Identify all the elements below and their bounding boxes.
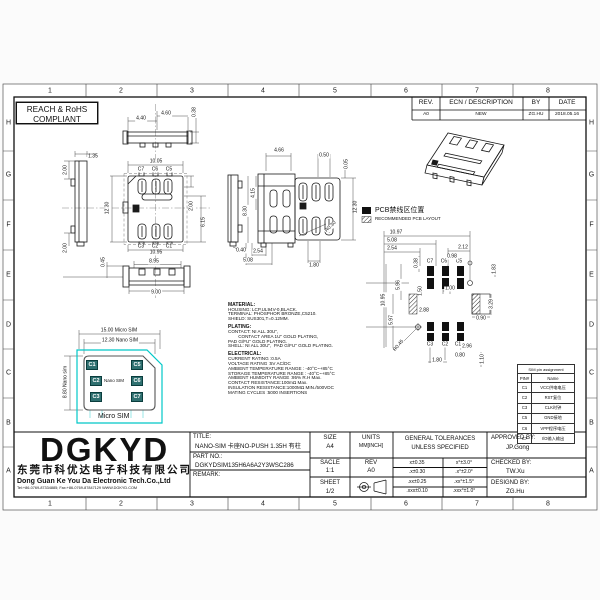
dimension-label: 12.30 Nano SIM	[101, 339, 139, 344]
dimension-label: 10.95	[149, 251, 164, 256]
dimension-label: C1	[165, 245, 173, 250]
tolerance-cell: .xxx±0.10	[406, 489, 427, 494]
dimension-label: 8.30	[244, 205, 249, 217]
grid-col-ref: 8	[546, 87, 550, 94]
tolerance-cell: .xx±0.25	[408, 480, 427, 485]
grid-row-ref: H	[6, 120, 11, 127]
dimension-label: 1.80	[431, 359, 443, 364]
grid-row-ref: A	[6, 468, 11, 475]
legend-keepout-label: PCB禁线区位置	[375, 207, 424, 214]
dimension-label: C6	[151, 168, 159, 173]
dimension-label: 0.38	[415, 257, 420, 269]
grid-col-ref: 5	[333, 500, 337, 507]
sheet-value: 1/2	[326, 489, 335, 495]
company-contact: Tel:+86-0769-87334885; Fax:+86-0769-8784…	[17, 487, 137, 491]
dimension-label: 2.54	[252, 250, 264, 255]
grid-row-ref: A	[589, 468, 594, 475]
grid-col-ref: 1	[48, 87, 52, 94]
dimension-label: 10.05	[149, 160, 164, 165]
grid-row-ref: F	[589, 222, 593, 229]
scale-label: SACLE	[320, 460, 340, 466]
tolerance-cell: .xx°±1.5°	[454, 480, 474, 485]
compliance-line2: COMPLIANT	[17, 115, 97, 125]
pin-table-row: C5GND接地	[518, 414, 574, 424]
remark-label: REMARK:	[193, 472, 220, 478]
grid-row-ref: D	[589, 322, 594, 329]
rev-value: A0	[423, 113, 429, 118]
grid-col-ref: 6	[404, 87, 408, 94]
dimension-label: 0.98	[446, 255, 458, 260]
grid-row-ref: E	[589, 272, 594, 279]
title-label: TITLE:	[193, 434, 211, 440]
grid-row-ref: C	[6, 370, 11, 377]
dimension-label: 2.96	[461, 345, 473, 350]
dimension-label: 1.10	[481, 353, 486, 365]
grid-col-ref: 1	[48, 500, 52, 507]
dimension-label: 5.97	[390, 314, 395, 326]
ecn-value: NEW	[475, 113, 486, 118]
dimension-label: 9.00	[150, 291, 162, 296]
sim-pad-c1: C1	[86, 360, 98, 370]
dimension-label: 2.12	[457, 246, 469, 251]
dimension-label: 2.00	[64, 164, 69, 176]
grid-col-ref: 6	[404, 500, 408, 507]
company-logo: DGKYD	[40, 433, 169, 466]
scale-value: 1:1	[326, 468, 335, 474]
grid-row-ref: E	[6, 272, 11, 279]
dimension-label: 3.29	[490, 298, 495, 310]
sim-pad-c3: C3	[90, 392, 102, 402]
designed-by-value: ZG.Hu	[506, 489, 524, 495]
dimension-label: 4.15	[252, 187, 257, 199]
pin-table-row: C6VPP程序电压	[518, 424, 574, 434]
units-label: UNITS	[362, 435, 380, 441]
tolerance-cell: .x±0.30	[409, 470, 425, 475]
date-value: 2018.05.16	[555, 113, 579, 118]
dimension-label: C6	[440, 260, 448, 265]
grid-col-ref: 8	[546, 500, 550, 507]
legend-recommended-label: RECOMMENDED PCB LAYOUT	[375, 217, 441, 222]
dimension-label: 12.30	[354, 200, 359, 215]
grid-col-ref: 4	[261, 500, 265, 507]
name-col-header: Name	[532, 374, 574, 382]
pin-table-row: C3CLK时钟	[518, 404, 574, 414]
dimension-label: 1.00	[444, 287, 456, 292]
grid-row-ref: D	[6, 322, 11, 329]
sim-pad-c5: C5	[131, 360, 143, 370]
dimension-label: 0.45	[102, 256, 107, 268]
pin-table-header: PIN# Name	[518, 374, 574, 383]
company-name-en: Dong Guan Ke You Da Electronic Tech.Co.,…	[17, 478, 171, 485]
dimension-label: 2.00	[190, 200, 195, 212]
material-note-line: SHELL: NI ALL 30U", PAD G/FU" GOLD PLATI…	[228, 344, 388, 349]
dimension-label: C3	[426, 343, 434, 348]
tolerances-title1: GENERAL TOLERANCES	[405, 436, 476, 442]
pin-name: VPP程序电压	[532, 424, 574, 433]
dimension-label: 1.80	[308, 264, 320, 269]
grid-row-ref: G	[589, 172, 594, 179]
approved-by-value: JP.Gong	[506, 445, 529, 451]
pin-assignment-table: SIM pin assignment PIN# Name C1VCC供电电压C2…	[517, 364, 575, 444]
grid-row-ref: B	[6, 420, 11, 427]
dimension-label: C2	[441, 343, 449, 348]
by-col-header: BY	[532, 100, 541, 107]
date-col-header: DATE	[559, 100, 576, 107]
compliance-line1: REACH & RoHS	[17, 105, 97, 115]
dimension-label: 6.15	[202, 216, 207, 228]
dimension-label: 1.83	[493, 263, 498, 275]
tolerance-cell: .x°±2.0°	[455, 470, 473, 475]
pin-col-header: PIN#	[518, 374, 532, 382]
sim-pad-c2: C2	[90, 376, 102, 386]
dimension-label: 2.88	[418, 309, 430, 314]
dimension-label: 0.90	[475, 317, 487, 322]
micro-sim-label: Micro SIM	[98, 413, 130, 420]
pin-name: RST复位	[532, 393, 574, 402]
approved-by-label: APPROVED BY:	[491, 435, 535, 441]
rev-block-value: A0	[367, 468, 375, 474]
size-label: SIZE	[323, 435, 336, 441]
by-value: ZG.HU	[529, 113, 544, 118]
nano-sim-label: Nano SIM	[104, 379, 124, 384]
designed-by-label: DESIGND BY:	[491, 480, 529, 486]
dimension-label: 1.35	[87, 155, 99, 160]
pin-number: C6	[518, 424, 532, 433]
sim-pad-c6: C6	[131, 376, 143, 386]
grid-row-ref: C	[589, 370, 594, 377]
dimension-label: 5.96	[397, 279, 402, 291]
dimension-label: C3	[137, 245, 145, 250]
dimension-label: 0.40	[235, 249, 247, 254]
dimension-label: 12.30	[106, 201, 111, 216]
grid-row-ref: B	[589, 420, 594, 427]
grid-col-ref: 2	[119, 87, 123, 94]
tolerance-cell: x±0.35	[410, 461, 425, 466]
grid-col-ref: 3	[190, 500, 194, 507]
checked-by-value: TW.Xu	[506, 469, 525, 475]
pin-name: CLK时钟	[532, 404, 574, 413]
dimension-label: C5	[455, 260, 463, 265]
part-no-value: DGKYDSIM135H6A6A2Y3WSC286	[195, 463, 294, 469]
pin-number: C5	[518, 414, 532, 423]
tolerance-cell: .xxx°±1.0°	[453, 489, 476, 494]
dimension-label: 15.00 Micro SIM	[100, 329, 138, 334]
grid-row-ref: G	[6, 172, 11, 179]
size-value: A4	[326, 444, 334, 450]
tolerances-title2: UNLESS SPECIFIED	[411, 445, 468, 451]
pin-number: C1	[518, 383, 532, 392]
dimension-label: C7	[426, 260, 434, 265]
grid-col-ref: 3	[190, 87, 194, 94]
sim-pad-c7: C7	[131, 392, 143, 402]
grid-col-ref: 2	[119, 500, 123, 507]
units-value: MM[INCH]	[359, 444, 383, 449]
dimension-label: 8.95	[148, 260, 160, 265]
pin-table-title: SIM pin assignment	[518, 365, 574, 374]
dimension-label: 0.38	[193, 106, 198, 118]
dimension-label: 5.08	[386, 239, 398, 244]
rev-label: REV	[365, 460, 377, 466]
ecn-col-header: ECN / DESCRIPTION	[449, 100, 513, 107]
pin-table-row: C1VCC供电电压	[518, 383, 574, 393]
dimension-label: 4.40	[135, 117, 147, 122]
grid-col-ref: 7	[475, 87, 479, 94]
sheet-label: SHEET	[320, 480, 340, 486]
pin-number: C2	[518, 393, 532, 402]
pin-number: C3	[518, 404, 532, 413]
pcb-keepout-left	[409, 294, 417, 314]
material-notes: MATERIAL:HOUSING: LCP,UL94V-0,BLACK.TERM…	[228, 300, 388, 396]
dimension-label: 5.08	[242, 259, 254, 264]
dimension-label: 2.00	[64, 242, 69, 254]
pcb-keepout-right	[472, 294, 480, 314]
material-note-line: SHIELD: SUS301,T=0.12MM.	[228, 317, 388, 322]
checked-by-label: CHECKED BY:	[491, 460, 531, 466]
grid-row-ref: F	[6, 222, 10, 229]
dimension-label: 10.97	[389, 231, 404, 236]
grid-row-ref: H	[589, 120, 594, 127]
title-value: NANO-SIM 卡座NO-PUSH 1.35H 有柱	[195, 444, 301, 450]
pin-name: VCC供电电压	[532, 383, 574, 392]
grid-col-ref: 4	[261, 87, 265, 94]
tolerance-cell: x°±3.0°	[456, 461, 472, 466]
pin-name: I/O输入输出	[532, 434, 574, 443]
dimension-label: 0.05	[345, 158, 350, 170]
grid-col-ref: 7	[475, 500, 479, 507]
company-name-cn: 东莞市科优达电子科技有限公司	[17, 465, 192, 476]
grid-col-ref: 5	[333, 87, 337, 94]
dimension-label: 8.80 Nano sim	[64, 365, 69, 399]
dimension-label: 10.95	[382, 293, 387, 308]
engineering-drawing-sheet: { "frame": { "columns": ["1","2","3","4"…	[0, 0, 600, 600]
dimension-label: 0.80	[454, 354, 466, 359]
part-no-label: PART NO.:	[193, 454, 222, 460]
dimension-label: 1.50	[419, 285, 424, 297]
dimension-label: C5	[165, 168, 173, 173]
pin-name: GND接地	[532, 414, 574, 423]
compliance-box: REACH & RoHS COMPLIANT	[16, 102, 98, 124]
dimension-label: 4.66	[273, 149, 285, 154]
rev-col-header: REV.	[419, 100, 434, 107]
dimension-label: C7	[137, 168, 145, 173]
dimension-label: 0.50	[318, 154, 330, 159]
dimension-label: 4.60	[160, 112, 172, 117]
pin-table-row: C2RST复位	[518, 393, 574, 403]
material-note-line: MATING CYCLES :5000 INSERTIONS	[228, 391, 388, 396]
dimension-label: 2.54	[386, 247, 398, 252]
